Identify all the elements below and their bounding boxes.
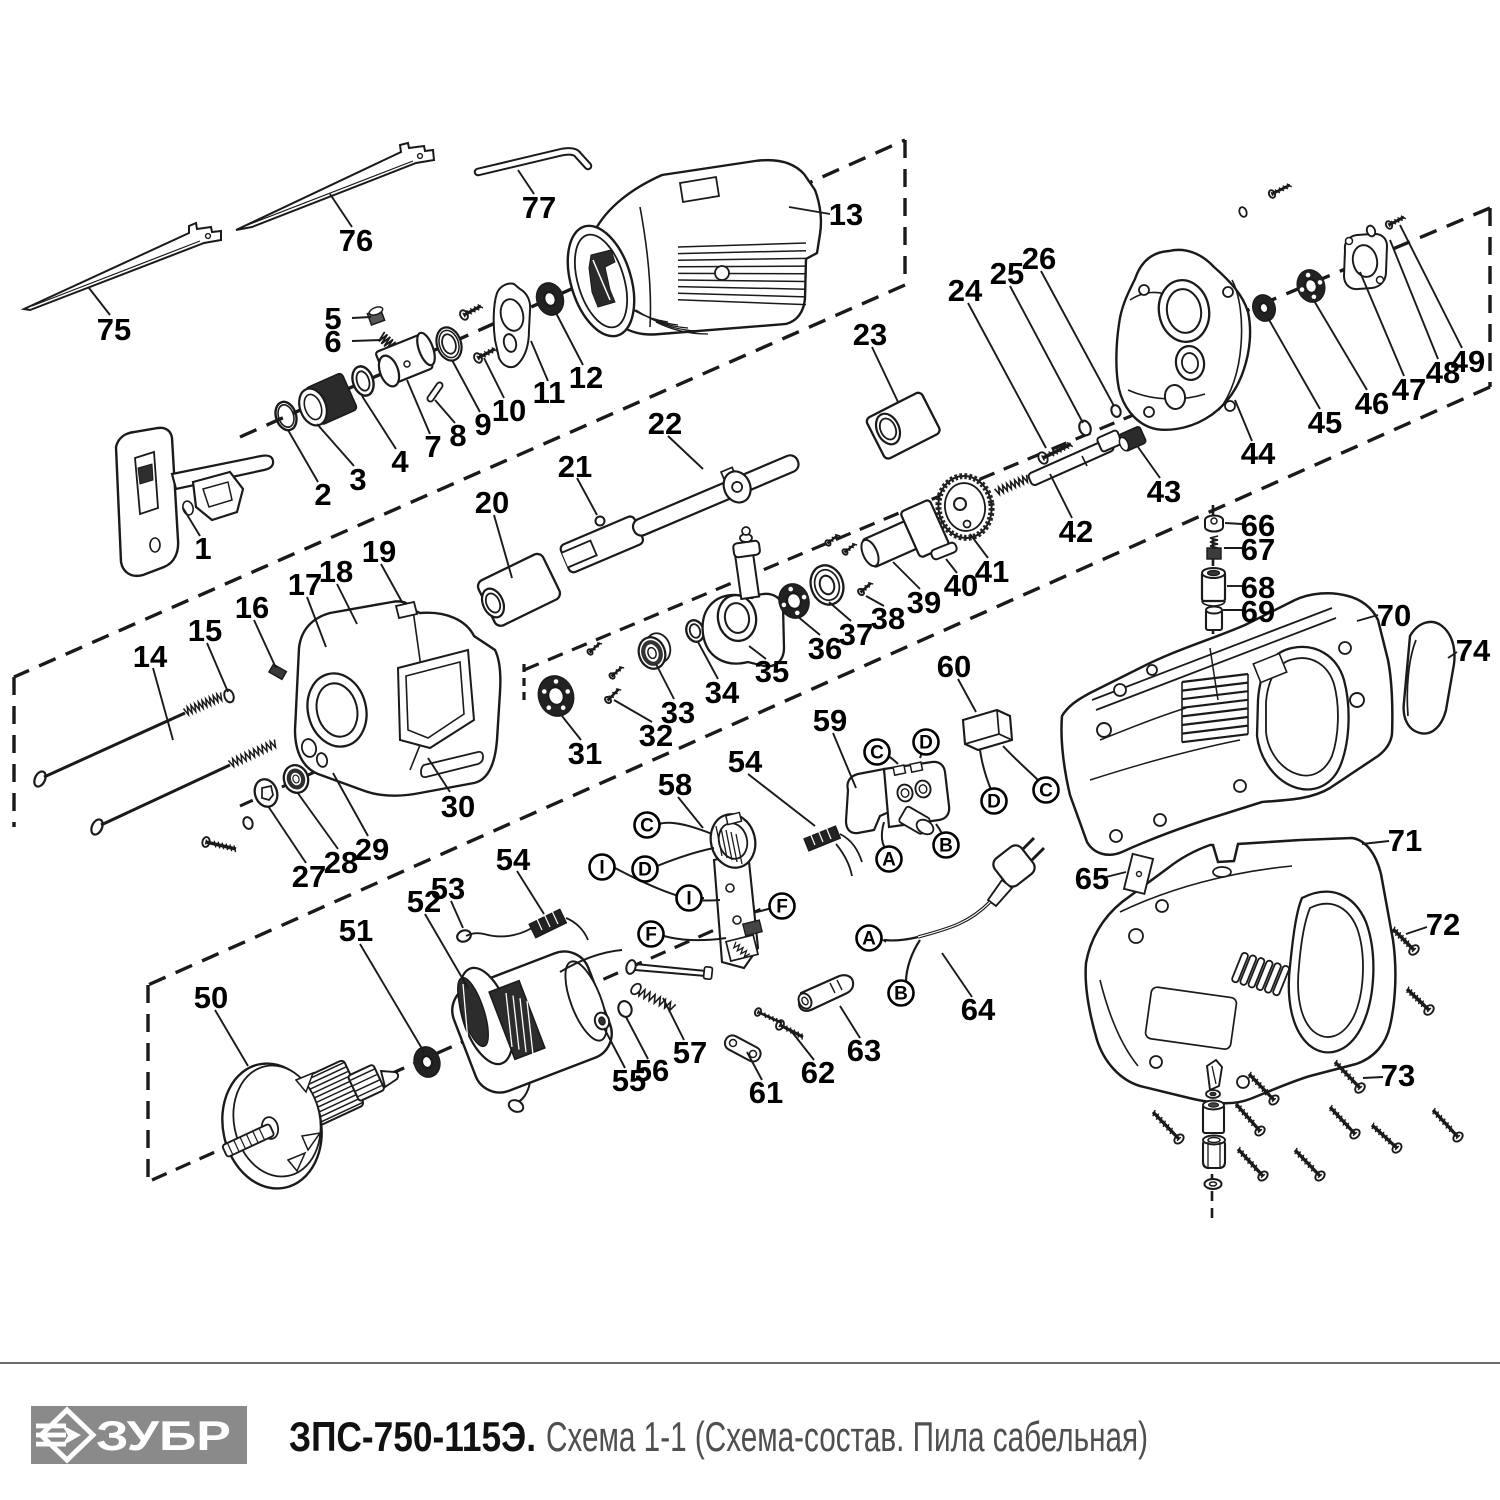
svg-text:21: 21 <box>558 449 592 484</box>
svg-text:16: 16 <box>235 590 269 625</box>
svg-text:35: 35 <box>755 654 789 689</box>
svg-text:47: 47 <box>1392 372 1426 407</box>
svg-text:65: 65 <box>1075 861 1109 896</box>
svg-text:6: 6 <box>324 324 341 359</box>
svg-text:62: 62 <box>801 1055 835 1090</box>
svg-text:46: 46 <box>1355 386 1389 421</box>
svg-text:24: 24 <box>948 273 983 308</box>
svg-text:10: 10 <box>492 393 526 428</box>
svg-text:51: 51 <box>339 913 373 948</box>
svg-text:7: 7 <box>424 429 441 464</box>
svg-text:29: 29 <box>355 832 389 867</box>
svg-text:17: 17 <box>288 567 322 602</box>
svg-text:61: 61 <box>749 1075 783 1110</box>
svg-text:25: 25 <box>990 256 1024 291</box>
svg-text:B: B <box>939 836 953 857</box>
svg-text:42: 42 <box>1059 514 1093 549</box>
svg-text:I: I <box>599 858 604 879</box>
svg-text:C: C <box>640 816 654 837</box>
svg-text:F: F <box>645 925 657 946</box>
svg-text:40: 40 <box>944 568 978 603</box>
svg-text:53: 53 <box>431 871 465 906</box>
svg-text:31: 31 <box>568 736 602 771</box>
svg-text:60: 60 <box>937 649 971 684</box>
svg-text:D: D <box>638 860 652 881</box>
svg-text:63: 63 <box>847 1033 881 1068</box>
svg-text:34: 34 <box>705 675 740 710</box>
svg-text:ЗПС-750-115Э.: ЗПС-750-115Э. <box>289 1413 536 1460</box>
svg-text:43: 43 <box>1147 474 1181 509</box>
svg-text:59: 59 <box>813 703 847 738</box>
svg-text:41: 41 <box>975 554 1009 589</box>
svg-text:77: 77 <box>522 190 556 225</box>
svg-text:54: 54 <box>496 842 531 877</box>
svg-text:45: 45 <box>1308 405 1342 440</box>
svg-text:13: 13 <box>829 197 863 232</box>
svg-text:A: A <box>882 850 896 871</box>
svg-text:30: 30 <box>441 789 475 824</box>
svg-text:75: 75 <box>97 312 131 347</box>
svg-text:14: 14 <box>133 639 168 674</box>
svg-text:33: 33 <box>661 695 695 730</box>
svg-text:F: F <box>776 897 788 918</box>
svg-text:57: 57 <box>673 1035 707 1070</box>
svg-text:C: C <box>870 743 884 764</box>
svg-text:C: C <box>1039 781 1053 802</box>
svg-text:18: 18 <box>319 554 353 589</box>
svg-text:D: D <box>919 733 933 754</box>
svg-text:28: 28 <box>324 845 358 880</box>
svg-text:26: 26 <box>1022 241 1056 276</box>
svg-text:64: 64 <box>961 992 996 1027</box>
svg-text:36: 36 <box>808 631 842 666</box>
svg-text:76: 76 <box>339 223 373 258</box>
svg-text:A: A <box>862 929 876 950</box>
svg-text:I: I <box>686 889 691 910</box>
svg-text:37: 37 <box>839 617 873 652</box>
svg-text:1: 1 <box>194 531 211 566</box>
svg-text:49: 49 <box>1451 344 1485 379</box>
svg-text:70: 70 <box>1377 598 1411 633</box>
svg-text:73: 73 <box>1381 1058 1415 1093</box>
svg-text:39: 39 <box>907 585 941 620</box>
svg-text:19: 19 <box>362 534 396 569</box>
svg-text:67: 67 <box>1241 532 1275 567</box>
svg-text:20: 20 <box>475 485 509 520</box>
svg-text:23: 23 <box>853 317 887 352</box>
svg-text:38: 38 <box>871 601 905 636</box>
svg-text:22: 22 <box>648 406 682 441</box>
svg-text:54: 54 <box>728 744 763 779</box>
svg-text:12: 12 <box>569 360 603 395</box>
svg-text:9: 9 <box>474 407 491 442</box>
svg-text:4: 4 <box>391 444 409 479</box>
svg-text:27: 27 <box>292 859 326 894</box>
svg-text:71: 71 <box>1388 823 1422 858</box>
svg-text:3: 3 <box>349 462 366 497</box>
svg-text:58: 58 <box>658 767 692 802</box>
svg-text:ЗУБР: ЗУБР <box>96 1412 231 1459</box>
svg-text:B: B <box>894 984 908 1005</box>
svg-text:Схема 1-1 (Схема-состав. Пила: Схема 1-1 (Схема-состав. Пила сабельная) <box>546 1413 1148 1460</box>
svg-text:8: 8 <box>449 418 466 453</box>
svg-text:2: 2 <box>314 477 331 512</box>
svg-text:15: 15 <box>188 613 222 648</box>
svg-text:56: 56 <box>635 1053 669 1088</box>
svg-text:74: 74 <box>1456 633 1491 668</box>
svg-text:44: 44 <box>1241 436 1276 471</box>
svg-text:11: 11 <box>533 375 566 410</box>
svg-text:50: 50 <box>194 980 228 1015</box>
svg-text:72: 72 <box>1426 907 1460 942</box>
svg-text:D: D <box>987 792 1001 813</box>
svg-text:69: 69 <box>1241 594 1275 629</box>
